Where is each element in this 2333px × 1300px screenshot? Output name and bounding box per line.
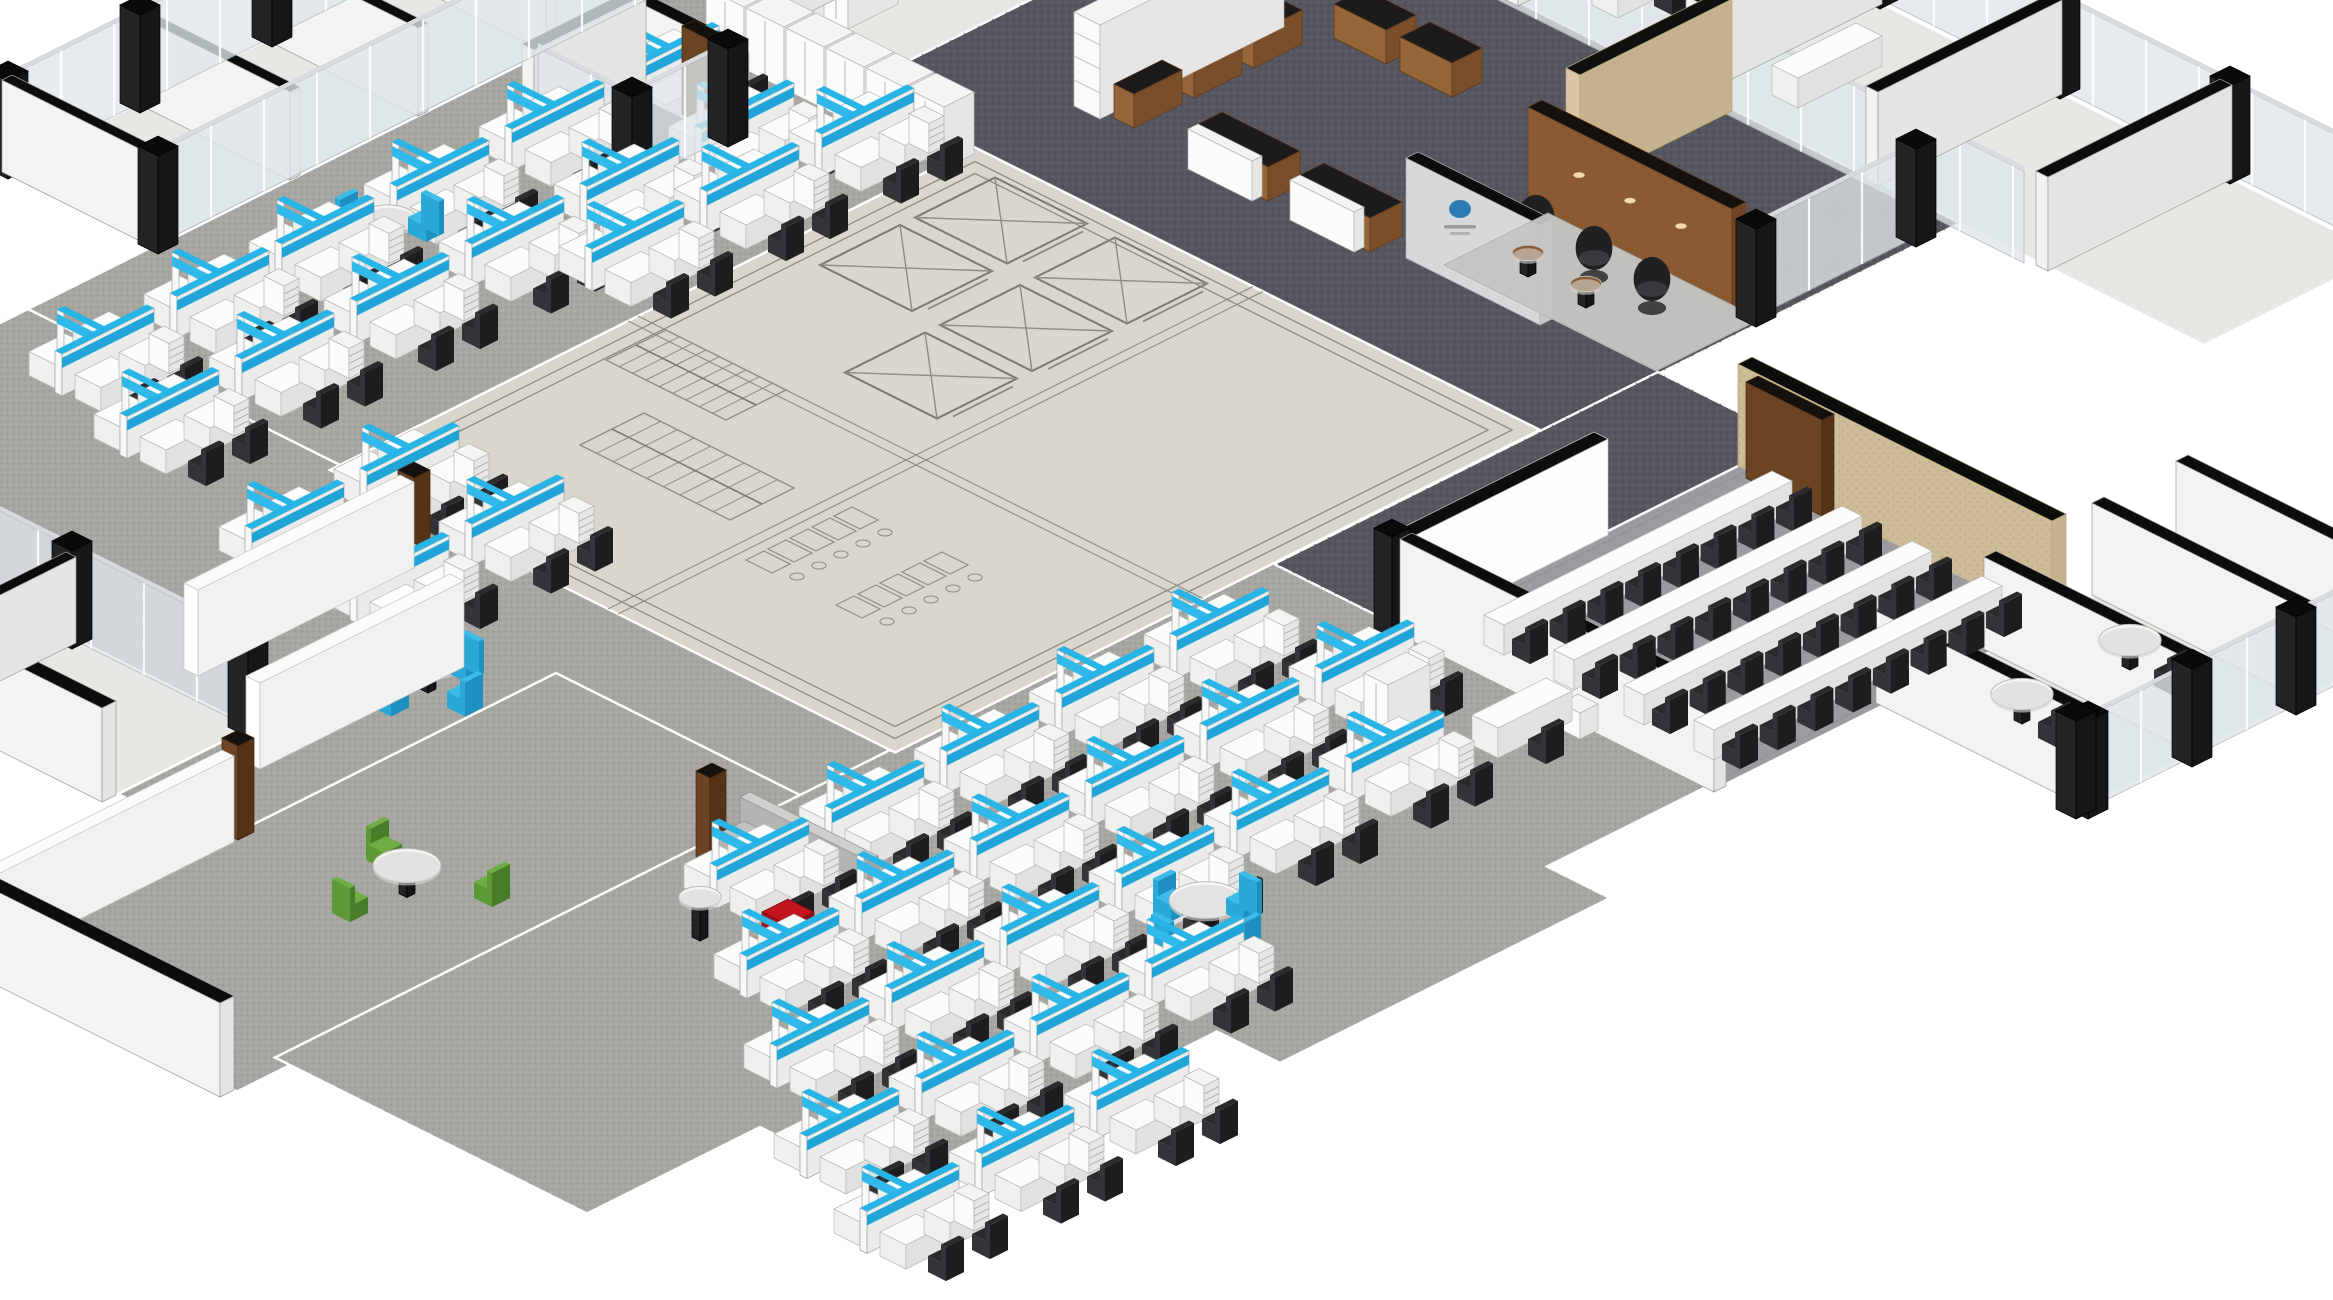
isometric-office-scene [0, 0, 2333, 1300]
lounge-chair [1634, 257, 1671, 315]
office-floorplan-rendering [0, 0, 2333, 1300]
lounge-chair [1576, 226, 1613, 284]
column [2056, 701, 2096, 819]
